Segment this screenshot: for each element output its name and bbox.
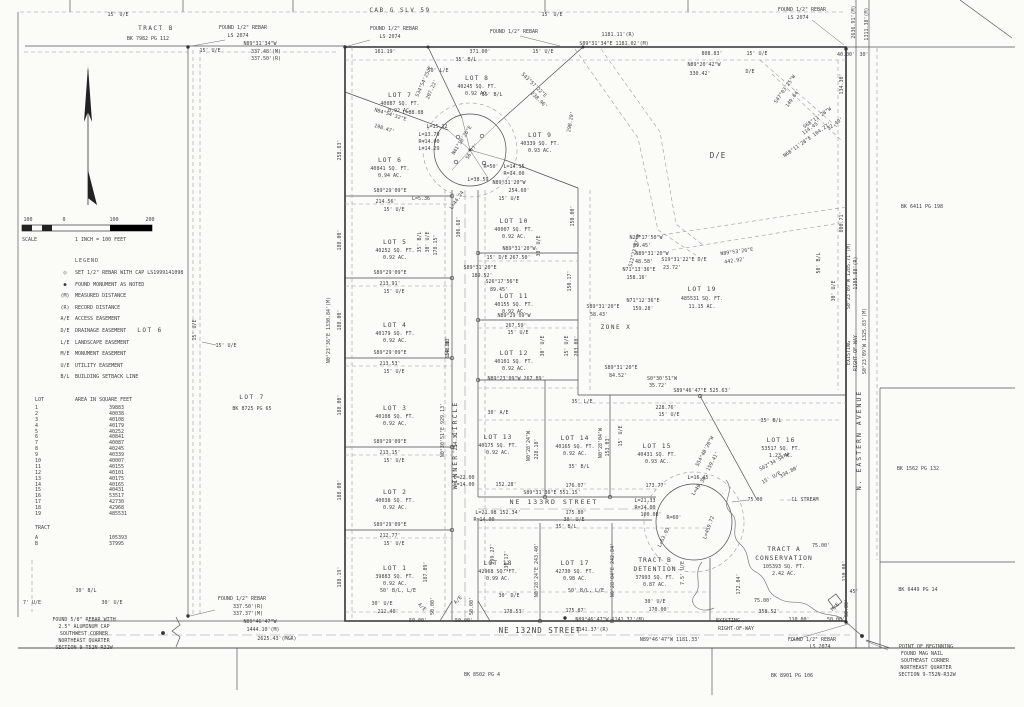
dim-label: 214.56' (375, 199, 396, 205)
table-header-lot: LOT (35, 397, 75, 403)
tract-label: DETENTION (633, 566, 676, 573)
bearing-label: N0°23'36"E 1330.84'(M) (326, 297, 332, 363)
scale-bar: 100 0 100 200 SCALE 1 INCH = 100 FEET (22, 217, 155, 243)
lot-area: 40155 SQ. FT. (494, 302, 533, 308)
easement-label: 30' U/E (540, 335, 546, 356)
curve-label: R=14.00 (634, 505, 655, 511)
lot-label: LOT 15 (643, 443, 672, 450)
dim-label: 56.77' (465, 142, 480, 160)
setback-label: 35' B/L (555, 524, 576, 530)
easement-label: 30' A/E (487, 410, 508, 416)
dim-label: 258.83' (337, 139, 343, 160)
dim-label: 152.28' (495, 482, 516, 488)
dim-label: 150.00' (570, 205, 576, 226)
dim-label: 1181.11'(R) (601, 32, 634, 38)
dim-label: 267.50' (509, 255, 530, 261)
lot-acres: 0.92 AC. (486, 450, 510, 456)
right-of-way-note: EXISTING (716, 618, 740, 624)
lot-area: 40101 SQ. FT. (494, 359, 533, 365)
book-page-ref: BK 6411 PG 198 (901, 204, 943, 210)
lot-acres: 0.92 AC. (383, 581, 407, 587)
setback-label: 35' B/L (455, 57, 476, 63)
lot-acres: 0.92 AC. (502, 309, 526, 315)
dim-label: 213.53' (379, 361, 400, 367)
dim-label: 173.77' (645, 483, 666, 489)
dim-label: 334.80' (779, 465, 800, 480)
dim-label: 106.68' (456, 216, 462, 237)
curve-label: R=14.00 (473, 517, 494, 523)
bearing-label: S89°31'36"E 551.15' (523, 490, 580, 496)
lot-acres: 0.92 AC. (383, 338, 407, 344)
flood-zone-label: ZONE X (601, 324, 632, 331)
monument-note: LS 2074 (787, 15, 808, 21)
lot-label: LOT 18 (484, 560, 513, 567)
easement-label: 15' U/E (383, 541, 404, 547)
lot-label: LOT 8 (465, 75, 489, 82)
book-page-ref: BK 1562 PG 132 (897, 466, 939, 472)
adjacent-lot-label: LOT 7 (239, 394, 265, 401)
dim-label: 178.53' (503, 609, 524, 615)
lot-area: 485531 SQ. FT. (681, 296, 723, 302)
bearing-label: S89°31'20"E (604, 365, 637, 371)
lot-label: LOT 1 (383, 565, 407, 572)
monument-note: FOUND 1/2" REBAR (788, 637, 837, 643)
monument-note: FOUND 1/2" REBAR (370, 26, 419, 32)
dim-label: 2625.43'(M&R) (257, 636, 296, 642)
tract-acres: 0.87 AC. (643, 582, 667, 588)
bearing-label: N89°46'47"W 1141.32'(M) (575, 617, 644, 623)
dim-label: 15' U/E (541, 12, 562, 18)
bearing-label: N89°20'42"W (687, 62, 721, 68)
right-of-way-note: RIGHT-OF-WAY (718, 626, 754, 632)
bearing-label: N71°12'36"E (626, 298, 659, 304)
setback-label: 35' B/L (568, 464, 589, 470)
bearing-label: N89°53'26"E (720, 247, 754, 258)
dim-label: 800.71' (839, 211, 845, 232)
bearing-label: N0°28'24"E 243.40' (534, 543, 540, 597)
book-page-ref: BK 6449 PG 14 (898, 587, 937, 593)
curve-label: R=50' (483, 164, 498, 170)
curve-label: L=15.32 (426, 124, 447, 130)
dim-label: 170.00' (648, 607, 669, 613)
dim-label: 15' U/E (107, 12, 128, 18)
dim-label: 213.91' (379, 281, 400, 287)
dim-label: 48.58' (635, 259, 653, 265)
dim-label: 188.00' (337, 479, 343, 500)
easement-label: 15' U/E (383, 369, 404, 375)
lot-area-table: LOT AREA IN SQUARE FEET 1398832400383401… (35, 397, 165, 547)
monument-note: LS 2074 (809, 644, 830, 650)
dim-label: 442.92' (724, 257, 746, 266)
bearing-label: N71°13'36"E (622, 267, 655, 273)
easement-label: 15' U/E (618, 425, 624, 446)
dim-label: 267.89' (523, 376, 544, 382)
scale-tick: 200 (145, 217, 154, 223)
dim-label: 254.60' (508, 188, 529, 194)
lot-label: LOT 19 (688, 286, 717, 293)
bearing-label: N89°31'20"W (492, 180, 526, 186)
point-of-beginning-note: POINT OF BEGINNING (899, 644, 953, 650)
easement-label: 30' U/E (644, 599, 665, 605)
lot-acres: 0.92 AC. (502, 234, 526, 240)
point-of-beginning-note: NORTHEAST QUARTER (900, 665, 952, 671)
dim-label: 187.09' (423, 561, 429, 582)
dim-label: 161.19' (374, 49, 395, 55)
dim-label: 100.08' (640, 512, 661, 518)
dim-label: 75.00' (754, 598, 772, 604)
table-header-area: AREA IN SQUARE FEET (75, 397, 132, 403)
lot-area: 40245 SQ. FT. (457, 84, 496, 90)
curve-label: L=14.15 (503, 164, 524, 170)
dim-label: 50.00' (430, 597, 436, 615)
access-easement-label: A/E (453, 595, 464, 606)
lot-acres: 0.92 AC. (388, 108, 412, 114)
bearing-label: S89°29'09"E (373, 522, 406, 528)
easement-label: 15' U/E (383, 289, 404, 295)
dim-label: 298.29' (566, 111, 576, 133)
corner-note: NORTHEAST QUARTER (58, 638, 110, 644)
street-name-ne-132nd: NE 132ND STREET (499, 626, 582, 635)
lot-acres: 0.94 AC. (378, 173, 402, 179)
lot-acres: 11.15 AC. (688, 304, 715, 310)
lot-label: LOT 14 (561, 435, 590, 442)
table-row: B37995 (35, 541, 165, 547)
lot-area: 40108 SQ. FT. (375, 414, 414, 420)
tract-area: 37993 SQ. FT. (635, 575, 674, 581)
bearing-label: N89°31'34"W (243, 41, 277, 47)
legend-item: M/EMONUMENT EASEMENT (55, 351, 245, 357)
dim-label: 50.00' (455, 618, 473, 624)
easement-label: 15' U/E (383, 207, 404, 213)
dim-label: 228.18' (534, 438, 540, 459)
tract-b-title: TRACT B (138, 25, 174, 32)
curve-label: L=13.79 (418, 132, 439, 138)
dim-label: 330.42' (689, 71, 710, 77)
plat-book-ref: CAB G SLV 59 (369, 7, 430, 14)
lot-label: LOT 10 (500, 218, 529, 225)
dim-label: 148.83' (445, 335, 451, 356)
lot-label: LOT 12 (500, 350, 529, 357)
street-name-ne-133rd: NE 133RD STREET (510, 498, 599, 506)
easement-label: 30' U/E (371, 601, 392, 607)
legend-item: (R)RECORD DISTANCE (55, 305, 245, 311)
north-arrow (84, 66, 97, 205)
lot-area: 53517 SQ. FT. (761, 446, 800, 452)
easement-label: 15' U/E (383, 458, 404, 464)
legend-item: U/EUTILITY EASEMENT (55, 363, 245, 369)
lot-acres: 1.23 AC. (769, 453, 793, 459)
bearing-label: S89°29'09"E (373, 350, 406, 356)
dim-label: 337.50'(R) (233, 604, 263, 610)
dim-label: 50.00' (409, 618, 427, 624)
lot-acres: 0.92 AC. (383, 255, 407, 261)
stream-centerline-label: CL STREAM (791, 497, 818, 503)
corner-note: SECTION 9-T52N-R32W (55, 645, 113, 651)
lot-label: LOT 16 (767, 437, 796, 444)
dim-label: 84.52' (609, 373, 627, 379)
legend-item: ◎SET 1/2" REBAR WITH CAP LS1999141098 (55, 270, 245, 276)
monument-note: FOUND 1/2" REBAR (778, 7, 827, 13)
dim-label: 75.00' (812, 543, 830, 549)
lot-area: 39883 SQ. FT. (375, 574, 414, 580)
lot-area: 42730 SQ. FT. (555, 569, 594, 575)
dim-label: 203.08' (574, 335, 580, 356)
dim-label: 1285.88'(R) (853, 256, 859, 289)
legend-item: D/EDRAINAGE EASEMENT (55, 328, 245, 334)
book-page-ref: BK 8725 PG 65 (232, 406, 271, 412)
legend-items: ◎SET 1/2" REBAR WITH CAP LS1999141098●FO… (55, 270, 245, 380)
point-of-beginning-note: SECTION 9-T52N-R32W (898, 672, 956, 678)
corner-note: SOUTHWEST CORNER (60, 631, 109, 637)
found-monuments (161, 45, 864, 638)
bearing-label: S0°30'51"W (647, 376, 678, 382)
scale-label: SCALE (22, 237, 37, 243)
dim-label: 188.00' (337, 229, 343, 250)
easement-label: 30' D/E (498, 593, 519, 599)
lot-acres: 0.92 AC. (563, 451, 587, 457)
dim-label: 214.31' (453, 429, 459, 450)
easement-label: 15' U/E (658, 412, 679, 418)
dim-label: 175.87' (565, 608, 586, 614)
bearing-label: N89°31'20"W (502, 246, 536, 252)
lot-acres: 0.92 AC. (465, 91, 489, 97)
book-page-ref: BK 8502 PG 4 (464, 672, 500, 678)
easement-label: 15' U/E (507, 330, 528, 336)
right-of-way-note: EXISTING (846, 341, 852, 365)
dim-label: 212.40' (377, 609, 398, 615)
lot-label: LOT 9 (528, 132, 552, 139)
curve-label: L=22.00 (453, 475, 474, 481)
dim-label: 15' U/E (199, 48, 220, 54)
dim-label: 212.77' (379, 533, 400, 539)
dim-label: 134.30' (839, 73, 845, 94)
easement-label: 30' U/E (101, 600, 122, 606)
lot-label: LOT 11 (500, 293, 529, 300)
dim-label: 150.17' (567, 270, 573, 291)
bearing-label: S19°31'22"E D/E (661, 257, 706, 263)
setback-label: 35' B/L (417, 231, 423, 252)
bearing-label: S89°29'09"E (373, 439, 406, 445)
dim-label: 337.48'(M) (251, 49, 281, 55)
bearing-label: N0°28'04"E 242.84' (610, 543, 616, 597)
bearing-label: S89°46'47"E 525.63' (673, 388, 730, 394)
dim-label: 15' U/E (532, 49, 553, 55)
dim-label: 159.41' (706, 451, 721, 472)
easement-label: 15' U/E (564, 335, 570, 356)
dim-label: 23.72' (663, 265, 681, 271)
dim-label: 178.15' (433, 234, 439, 255)
curve-label: L=21.98 152.34' (475, 510, 520, 516)
curve-label: R=14.00 (418, 139, 439, 145)
street-centerlines (88, 190, 850, 635)
dim-label: 188.00' (337, 309, 343, 330)
dim-label: 75.00 (747, 497, 762, 503)
lot-area: 40252 SQ. FT. (375, 248, 414, 254)
setback-label: 50' B/L, L/E (380, 588, 416, 594)
street-name-n-eastern-avenue: N. EASTERN AVENUE (855, 390, 863, 491)
curve-label: R=14.00 (453, 482, 474, 488)
curve-label: L=21.33 (634, 498, 655, 504)
monument-easement-label: M/E (830, 602, 841, 613)
dim-label: 1141.37'(R) (575, 627, 608, 633)
lot-label: LOT 3 (383, 405, 407, 412)
bearing-label: S89°29'09"E (373, 188, 406, 194)
lot-area: 40165 SQ. FT. (555, 444, 594, 450)
lot-acres: 0.98 AC. (563, 576, 587, 582)
bearing-label: S89°31'20"E (586, 304, 619, 310)
dim-label: 50.00' (469, 597, 475, 615)
monument-note: FOUND 1/2" REBAR (490, 29, 539, 35)
lot-area: 40339 SQ. FT. (520, 141, 559, 147)
lot-area: 40087 SQ. FT. (380, 101, 419, 107)
lot-area: 40841 SQ. FT. (370, 166, 409, 172)
legend: LEGEND ◎SET 1/2" REBAR WITH CAP LS199914… (55, 258, 245, 386)
dim-label: 15' U/E (746, 51, 767, 57)
table-rows: 1398832400383401084401795402526408417400… (35, 405, 165, 517)
bearing-label: S0°23'09"W 1325.83'(M) (862, 308, 868, 374)
easement-label: 30' U/E (831, 280, 837, 301)
lot-acres: 0.93 AC. (528, 148, 552, 154)
curve-label: R=60' (666, 515, 681, 521)
table-row: 19485531 (35, 511, 165, 517)
dim-label: 808.83' (701, 51, 722, 57)
easement-label: 15' D/E (486, 255, 507, 261)
dim-label: 1444.10'(M) (246, 627, 279, 633)
bearing-label: S0°23'09"W 1285.71'(M) (846, 243, 852, 309)
scale-tick: 100 (109, 217, 118, 223)
bearing-label: S89°31'20"E (463, 265, 496, 271)
tract-label: TRACT A (767, 546, 801, 553)
lot-label: LOT 17 (561, 560, 590, 567)
dim-label: 2636.91'(M) (851, 5, 857, 38)
tract-area: 105393 SQ. FT. (763, 564, 805, 570)
right-of-way-note: RIGHT-OF-WAY (853, 335, 859, 371)
curve-label: L=14.29 (418, 146, 439, 152)
dim-label: 198.47' (373, 123, 395, 135)
dim-label: 110.00' (788, 617, 809, 623)
bearing-label: N0°28'24"W (526, 430, 532, 461)
easement-label: D/E (745, 69, 754, 75)
setback-label: 50' B/L (816, 252, 822, 273)
legend-item: (M)MEASURED DISTANCE (55, 293, 245, 299)
plat-sheet: 100 0 100 200 SCALE 1 INCH = 100 FEET 15… (0, 0, 1024, 707)
monument-note: FOUND 1/2" REBAR (219, 25, 268, 31)
corner-note: FOUND 5/8" REBAR WITH (52, 617, 115, 623)
tract-label: CONSERVATION (755, 555, 813, 562)
curve-label: L=459.72 (702, 515, 716, 540)
bearing-label: N0°28'04"W (598, 427, 604, 458)
easement-label: 7.5' U/E (680, 561, 686, 585)
easement-label: 30' U/E (425, 231, 431, 252)
book-page-ref: BK 7982 PG 112 (127, 36, 169, 42)
monument-note: FOUND 1/2" REBAR (218, 596, 267, 602)
dim-label: 45' (849, 589, 858, 595)
dim-label: 30' (859, 52, 868, 58)
dim-label: 158.16' (626, 275, 647, 281)
dim-label: 40.00' (837, 52, 855, 58)
monument-note: LS 2074 (379, 34, 400, 40)
scale-tick: 0 (62, 217, 65, 223)
book-page-ref: BK 8901 PG 106 (771, 673, 813, 679)
bearing-label: N89°46'47"W (243, 619, 277, 625)
dim-label: 35.72' (649, 383, 667, 389)
drainage-easement-label: D/E (710, 151, 727, 160)
lot-area: 40175 SQ. FT. (478, 443, 517, 449)
dim-label: 188.19' (337, 566, 343, 587)
lot-label: LOT 4 (383, 322, 407, 329)
dim-label: 371.00' (469, 49, 490, 55)
dim-label: 153.03' (605, 435, 611, 456)
legend-item: L/ELANDSCAPE EASEMENT (55, 340, 245, 346)
tract-label: TRACT B (638, 557, 672, 564)
bearing-label: N89°46'47"W 1181.33' (640, 637, 700, 643)
curve-label: L=5.36 (412, 196, 430, 202)
bearing-label: S89°31'34"E 1181.02'(M) (579, 41, 648, 47)
setback-label: 50' B/L, L/E (568, 588, 604, 594)
lot-area: 40179 SQ. FT. (375, 331, 414, 337)
dim-label: 337.37'(M) (233, 611, 263, 617)
lot-label: LOT 13 (484, 434, 513, 441)
legend-title: LEGEND (75, 258, 245, 264)
bearing-label: S89°29'09"E (373, 270, 406, 276)
lot-acres: 0.99 AC. (486, 576, 510, 582)
dim-label: 32.40' (826, 117, 844, 132)
legend-item: A/EACCESS EASEMENT (55, 316, 245, 322)
setback-label: 30' B/L (75, 588, 96, 594)
easement-label: 15' U/E (498, 196, 519, 202)
curve-label: L=38.59 (467, 177, 488, 183)
curve-label: R=14.00 (503, 171, 524, 177)
monument-note: LS 2074 (227, 33, 248, 39)
dim-label: 50.00' (844, 599, 850, 617)
bearing-label: N0°30'51"E 929.13' (440, 403, 446, 457)
lot-area: 40431 SQ. FT. (637, 452, 676, 458)
scale-tick: 100 (23, 217, 32, 223)
lot-label: LOT 7 (388, 92, 412, 99)
bearing-label: N89°23'09"W (487, 376, 521, 382)
tract-rows: A105393B37995 (35, 535, 165, 547)
lot-acres: 0.93 AC. (645, 459, 669, 465)
dim-label: 213.15' (379, 450, 400, 456)
point-of-beginning-note: SOUTHEAST CORNER (901, 658, 950, 664)
lot-label: LOT 6 (378, 157, 402, 164)
easement-label: 30' U/E (563, 517, 584, 523)
dim-label: 172.04' (736, 573, 742, 594)
legend-item: ●FOUND MONUMENT AS NOTED (55, 282, 245, 288)
dim-label: 110.00' (842, 560, 848, 581)
easement-label: 7' U/E (23, 600, 41, 606)
dim-label: 337.50'(R) (251, 56, 281, 62)
easement-label: 30' U/E (536, 235, 542, 256)
lot-acres: 0.92 AC. (383, 421, 407, 427)
lot-area: 40007 SQ. FT. (494, 227, 533, 233)
lot-label: LOT 5 (383, 239, 407, 246)
legend-item: B/LBUILDING SETBACK LINE (55, 374, 245, 380)
access-easement-label: A/E (416, 602, 427, 613)
tract-acres: 2.42 AC. (772, 571, 796, 577)
dim-label: 228.76' (655, 405, 676, 411)
lot-acres: 0.92 AC. (502, 366, 526, 372)
easement-label: 15' U/E (761, 471, 782, 486)
scale-equiv: 1 INCH = 100 FEET (75, 237, 126, 243)
bearing-label: S26°17'56"E (485, 279, 518, 285)
dim-label: 175.80' (565, 510, 586, 516)
dim-label: 358.52' (758, 609, 779, 615)
lot-area: 40038 SQ. FT. (375, 498, 414, 504)
dim-label: 188.00' (337, 394, 343, 415)
dim-label: 176.07' (565, 483, 586, 489)
dim-label: 50.00' (827, 617, 845, 623)
